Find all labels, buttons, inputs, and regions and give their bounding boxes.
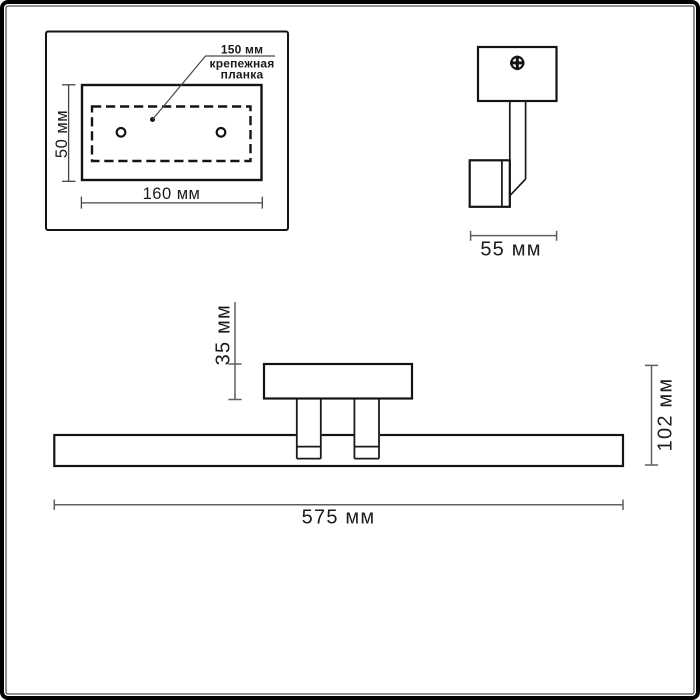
svg-text:150 мм: 150 мм <box>221 43 263 57</box>
svg-text:планка: планка <box>221 68 264 82</box>
svg-text:50 мм: 50 мм <box>53 110 71 158</box>
svg-text:160 мм: 160 мм <box>143 185 201 203</box>
svg-text:102 мм: 102 мм <box>655 378 677 452</box>
svg-text:575 мм: 575 мм <box>302 507 376 529</box>
svg-text:55 мм: 55 мм <box>480 239 541 261</box>
svg-text:35 мм: 35 мм <box>213 304 235 365</box>
